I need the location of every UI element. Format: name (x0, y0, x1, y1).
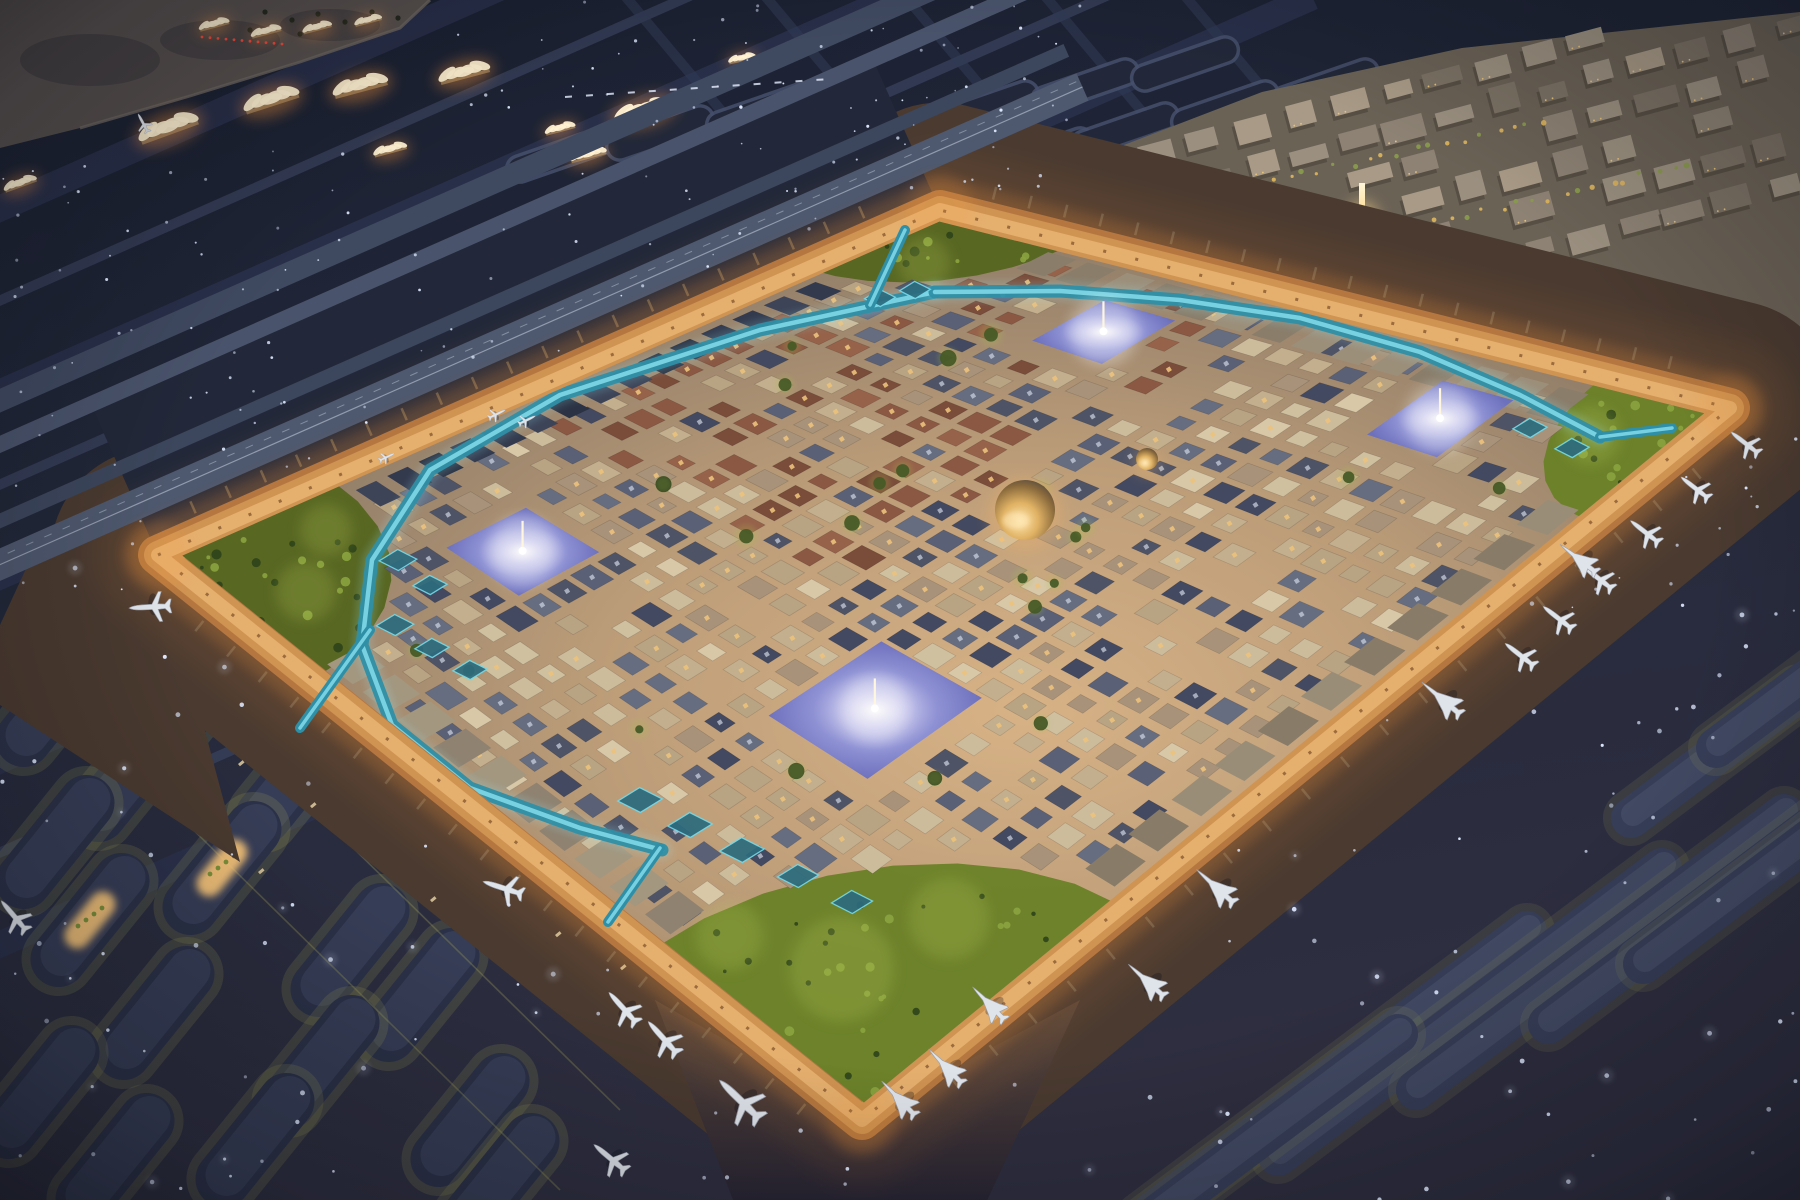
vignette (0, 0, 1800, 1200)
aerial-night-render (0, 0, 1800, 1200)
scene-svg (0, 0, 1800, 1200)
